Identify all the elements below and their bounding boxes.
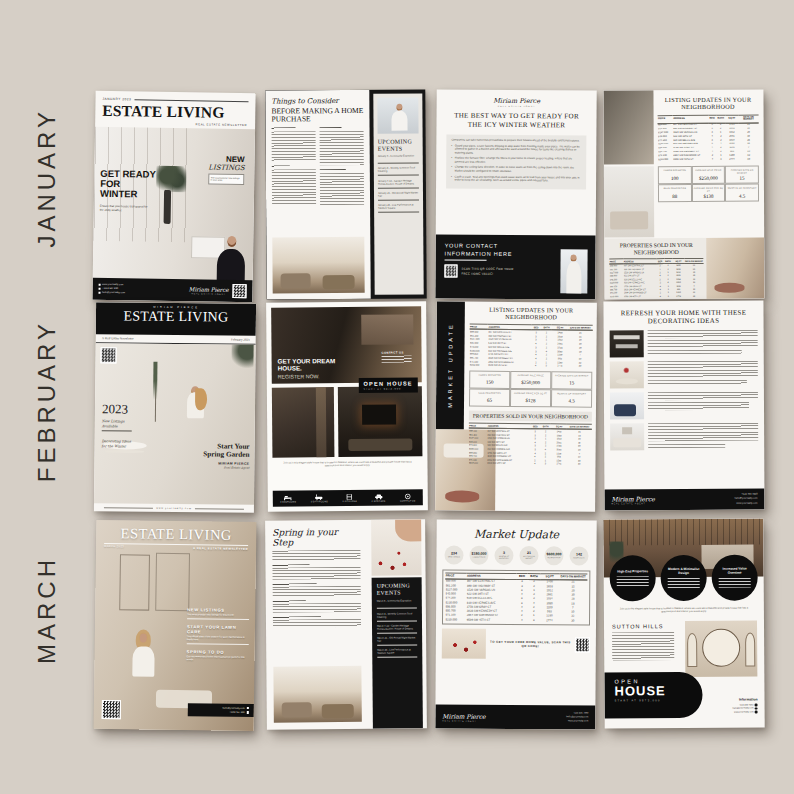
berries xyxy=(442,629,486,659)
col-header: SQ FT xyxy=(725,115,738,123)
jan-tips-page: Miriam Pierce REAL ESTATE AGENT THE BEST… xyxy=(435,89,596,299)
text-placeholder xyxy=(273,567,361,580)
text-placeholder xyxy=(668,577,699,587)
qr-caption: TO GET YOUR FREE HOME VALUE, SCAN THIS Q… xyxy=(490,640,571,649)
amenity-bathrooms: 3 BATHROOMS xyxy=(311,494,328,503)
event-text: March 8 - Monthly Common Roof Cleaning xyxy=(377,612,417,618)
amenity-label: 2 KITCHENS xyxy=(343,500,357,502)
text-placeholder xyxy=(382,355,412,362)
listings-label: LISTINGS xyxy=(208,164,244,173)
badge-title: OPEN HOUSE xyxy=(363,380,412,386)
events-sidebar: UPCOMING EVENTS March 5 - Community Expo… xyxy=(371,519,423,728)
mar-open-house-page: High-End Properties Modern & Minimalist … xyxy=(603,518,764,728)
decor-headline: REFRESH YOUR HOME WITH THESE DECORATING … xyxy=(615,309,751,327)
text-placeholder xyxy=(273,616,321,618)
issue-date: February 2023 xyxy=(231,338,250,342)
stat-label: SOLD PROPERTIES xyxy=(660,187,690,193)
table-row: $219,0009509 SW 45TH ST43277430 xyxy=(445,617,587,622)
amenity-label: 3 BATHROOMS xyxy=(311,501,328,503)
sidebar-photo-dress xyxy=(391,111,407,131)
sold-title: PROPERTIES SOLD IN YOUR NEIGHBORHOOD xyxy=(609,242,703,256)
article-main: Spring in your Step xyxy=(265,520,369,730)
masthead: ESTATE LIVING xyxy=(95,101,255,123)
decor-row xyxy=(610,392,758,420)
cover-block-lawn-care: START YOUR LAWN CARE The official start … xyxy=(187,624,249,645)
agent-title: REAL ESTATE AGENT xyxy=(189,292,229,295)
contact-list: www.yourrealty.com +1234 567 890 hello@y… xyxy=(98,283,184,297)
feature-circles: High-End Properties Modern & Minimalist … xyxy=(604,554,764,601)
event-text: March 5 - Community Exposition xyxy=(377,600,417,606)
plant-icon xyxy=(231,345,253,375)
sofa xyxy=(322,704,354,718)
event-text: January 6 - Community Exposition xyxy=(378,155,419,161)
event-text: January 28 - Live Performance at Stadium… xyxy=(378,203,419,209)
qr-code xyxy=(575,637,590,652)
event-item: January 7-13 - Garden Heritage Homes Auc… xyxy=(378,179,419,188)
block-title: START YOUR LAWN CARE xyxy=(187,624,249,635)
event-item: March 5 - Community Exposition xyxy=(377,600,417,609)
agent-portrait xyxy=(560,249,587,293)
curtain xyxy=(316,387,327,457)
issue-date: MARCH 2023 xyxy=(104,545,124,549)
event-rule xyxy=(378,163,419,164)
cover-line-2: Decorating Ideas for the Winter xyxy=(102,439,134,449)
tall-plant xyxy=(153,362,158,422)
cover-footer: www.yourrealty.com xyxy=(94,503,254,513)
table-row: $219,0009509 SW 45TH ST43277430 xyxy=(658,158,759,162)
sidebar-photo xyxy=(377,97,418,133)
col-header: PRICE xyxy=(658,115,673,123)
agent-title: Real Estate Agent xyxy=(195,465,249,470)
event-item: March 21 - Old Annual Night Market Fair xyxy=(377,636,417,645)
text-placeholder xyxy=(273,583,317,585)
table-row: $219,0009509 SW 45TH ST43277430 xyxy=(469,363,592,368)
masthead: ESTATE LIVING xyxy=(96,308,256,326)
portrait-head xyxy=(571,254,577,261)
script-title: Market Update xyxy=(443,527,591,541)
mockup-canvas: JANUARY FEBRUARY MARCH JANUARY 2023 ESTA… xyxy=(0,0,794,794)
col-header: ADDRESS xyxy=(673,115,708,123)
contact-list: +123 456 7890 hello@yourrealty.com www.y… xyxy=(566,712,588,724)
lounge-photo xyxy=(272,387,335,458)
block-sub: Our recommended home improvement project… xyxy=(187,655,249,662)
bedroom-photo xyxy=(604,166,654,237)
pastry-photo xyxy=(442,629,486,659)
stat-circle: 21 AVG DAYS ON MARKET xyxy=(519,546,538,565)
living-room-photo xyxy=(272,237,364,294)
feature-circle: Increased Value Overtime xyxy=(712,554,758,600)
circle-label: MONTHS OF INVENTORY xyxy=(494,556,513,560)
article-col-1 xyxy=(272,127,317,205)
text-placeholder xyxy=(648,330,758,339)
listing-table: PRICE ADDRESS BED BATH SQ FT DAYS ON MAR… xyxy=(445,573,587,623)
cover-headline-sub: Ensure that your house is prepared for t… xyxy=(100,205,150,213)
hero-photo: GET YOUR DREAM HOUSE. REGISTER NOW. CONT… xyxy=(271,306,422,383)
script-title: Things to Consider xyxy=(271,97,363,106)
stat-label: AVERAGE SALE PRICE xyxy=(512,373,549,379)
text-placeholder xyxy=(272,165,290,167)
living-photo xyxy=(610,423,644,450)
photo-row xyxy=(272,386,423,457)
open-house-badge: OPEN HOUSE START AT $873,000 xyxy=(358,377,417,393)
tip-bullet: Guard your pipes. Leave faucets dripping… xyxy=(451,144,581,155)
feature-block: Start Your Spring Garden MIRIAM PIERCE R… xyxy=(195,442,249,470)
decor-text xyxy=(648,392,758,420)
sold-photo xyxy=(706,238,764,299)
stat-value: $138 xyxy=(694,194,724,199)
text-placeholder xyxy=(648,423,758,431)
feb-cover-page: MIRIAM PIERCE ESTATE LIVING A Real Estat… xyxy=(94,302,256,513)
cover-footer: www.yourrealty.com +1234 567 890 hello@y… xyxy=(92,278,252,303)
text-placeholder xyxy=(272,550,360,561)
text-placeholder xyxy=(320,127,342,129)
stat-value: $250,000 xyxy=(694,176,724,181)
month-label-january: JANUARY xyxy=(33,108,61,248)
qr-code xyxy=(102,700,121,719)
text-placeholder xyxy=(320,172,364,204)
text-placeholder xyxy=(648,444,725,448)
stat-label: MONTHS OF INVENTORY xyxy=(553,392,590,398)
feature-circle: Modern & Minimalist Design xyxy=(661,555,707,601)
events-list: January 6 - Community Exposition January… xyxy=(378,155,419,213)
listings-sub: The most popular new listings in your ar… xyxy=(208,174,244,185)
blue-chair xyxy=(614,404,636,416)
sold-section: PROPERTIES SOLD IN YOUR NEIGHBORHOOD PRI… xyxy=(604,238,764,300)
contact-row: +1234 567 890 xyxy=(193,710,249,715)
tv xyxy=(622,427,632,434)
market-update-strip: MARKET UPDATE xyxy=(436,301,465,429)
newsletter-label: A Real Estate Newsletter xyxy=(102,336,134,340)
text-placeholder xyxy=(272,127,296,129)
mar-cover-page: ESTATE LIVING MARCH 2023 A REAL ESTATE N… xyxy=(94,520,257,731)
globe-icon xyxy=(755,711,758,714)
event-rule xyxy=(377,620,417,621)
stat-circle: 234 NEW LISTINGS xyxy=(444,545,463,564)
stat-value: 4.5 xyxy=(553,399,590,404)
col-header: BED xyxy=(708,115,716,123)
fireplace xyxy=(362,405,396,425)
sold-content: PROPERTIES SOLD IN YOUR NEIGHBORHOOD PRI… xyxy=(609,242,703,298)
article-columns xyxy=(272,127,365,205)
stat-circle: $150,000 LOWEST PRICE xyxy=(469,546,488,565)
text-placeholder xyxy=(648,392,758,401)
event-text: March 7-13 - Garden Heritage Homes Aucti… xyxy=(377,624,417,630)
listing-table: PRICE ADDRESS BED BATH SQ FT DAYS ON MAR… xyxy=(658,114,759,162)
round-window-photo xyxy=(685,620,757,677)
stat-box: AVERAGE SALE PRICE $250,000 xyxy=(692,166,726,184)
decor-text xyxy=(648,330,758,358)
stat-box: AVERAGE PRICE PER SQ FT $128 xyxy=(510,389,551,408)
signature-block: Miriam Pierce REAL ESTATE AGENT xyxy=(442,712,485,721)
strip-label: MARKET UPDATE xyxy=(447,323,454,408)
hero-sub: REGISTER NOW. xyxy=(278,373,320,379)
stat-label: HOMES REPORTED xyxy=(471,373,508,379)
contact-block: CONTACT US xyxy=(382,350,412,362)
event-rule xyxy=(377,632,417,633)
stat-label: HOMES REPORTED xyxy=(660,169,690,175)
stat-box: HOMES REPORTED 150 xyxy=(469,370,510,389)
text-placeholder xyxy=(617,576,648,586)
bed xyxy=(610,211,648,229)
sofa xyxy=(323,275,355,289)
website: www.yourrealty.com xyxy=(156,506,192,509)
cover-headline: GET READY FOR WINTER xyxy=(100,169,158,200)
events-sidebar: UPCOMING EVENTS January 6 - Community Ex… xyxy=(373,93,423,294)
arch-window xyxy=(687,633,697,667)
open-house-badge: OPEN HOUSE START AT $873,000 xyxy=(604,672,702,719)
logo-block: Miriam Pierce REAL ESTATE AGENT xyxy=(437,89,597,107)
stats-grid: HOMES REPORTED 100 AVERAGE SALE PRICE $2… xyxy=(658,166,759,203)
cover-block-spring-todo: SPRING TO DO Our recommended home improv… xyxy=(187,649,249,662)
agent-photo-head xyxy=(227,236,236,247)
stat-value: 4.5 xyxy=(727,194,757,199)
cover-block-new-listings: NEW LISTINGS The most popular new listin… xyxy=(187,607,249,619)
event-text: January 7-13 - Garden Heritage Homes Auc… xyxy=(378,179,419,185)
stat-box: MONTHS OF INVENTORY 4.5 xyxy=(725,184,759,202)
stat-value: 65 xyxy=(471,398,508,403)
stat-box: AVERAGE SALE PRICE $250,000 xyxy=(510,370,551,389)
mar-article-page: Spring in your Step UPCOMING EVENTS xyxy=(265,519,427,729)
tips-box: Companies can take numerous precautions … xyxy=(446,134,586,189)
article-headline: BEFORE MAKING A HOME PURCHASE xyxy=(271,106,363,123)
updates-title: LISTING UPDATES IN YOUR NEIGHBORHOOD xyxy=(657,96,758,111)
community-title: SUTTON HILLS xyxy=(612,623,674,629)
stat-value: $128 xyxy=(512,398,549,403)
block-sub: The most popular new listings for this m… xyxy=(187,613,249,617)
col-header: BATH xyxy=(716,115,725,123)
badge-sub: START AT $873,000 xyxy=(364,387,413,389)
stat-label: SOLD PROPERTIES xyxy=(471,391,508,397)
stat-box: SOLD PROPERTIES 88 xyxy=(658,184,692,202)
jan-market-page: LISTING UPDATES IN YOUR NEIGHBORHOOD PRI… xyxy=(603,90,764,300)
text-placeholder xyxy=(648,370,758,378)
kitchen-photo xyxy=(603,90,653,164)
window-frame xyxy=(119,554,150,610)
contact-title: YOUR CONTACT INFORMATION HERE xyxy=(445,242,545,259)
text-placeholder xyxy=(612,632,674,660)
wood-ceiling xyxy=(603,518,763,545)
event-rule xyxy=(378,211,419,212)
event-text: January 21 - Old Annual Night Market Fai… xyxy=(378,191,419,197)
stat-label: MONTHS OF INVENTORY xyxy=(727,187,757,193)
sold-title: PROPERTIES SOLD IN YOUR NEIGHBORHOOD xyxy=(469,410,592,422)
feb-decor-page: REFRESH YOUR HOME WITH THESE DECORATING … xyxy=(603,301,764,511)
event-rule xyxy=(378,187,419,188)
flowers xyxy=(623,367,630,373)
tips-intro: Companies can take numerous precautions … xyxy=(451,138,581,142)
contact-email: hello@yourrealty.com xyxy=(102,291,125,295)
table-row: $219,0009509 SW 45TH ST43277430 xyxy=(610,294,704,298)
stat-circle: $600,000 HIGHEST PRICE xyxy=(544,546,563,565)
fireplace-photo xyxy=(338,386,423,457)
stat-value: 150 xyxy=(471,380,508,385)
event-item: January 28 - Live Performance at Stadium… xyxy=(378,203,419,212)
mar-market-page: Market Update 234 NEW LISTINGS $150,000 … xyxy=(435,519,596,729)
feb-open-house-page: GET YOUR DREAM HOUSE. REGISTER NOW. CONT… xyxy=(266,301,428,511)
circle-label: HIGHEST PRICE xyxy=(546,557,561,559)
dining-photo xyxy=(610,361,644,388)
agent-title: REAL ESTATE AGENT xyxy=(442,719,485,721)
mail-icon xyxy=(247,707,249,709)
cover-person-body xyxy=(132,646,154,676)
logo-title: REAL ESTATE AGENT xyxy=(437,104,597,107)
badge-sub: START AT $873,000 xyxy=(615,699,693,703)
month-label-march: MARCH xyxy=(33,556,61,664)
rule xyxy=(195,508,244,509)
feature-title: Increased Value Overtime xyxy=(719,568,751,576)
cover-photo: 2023 New Listings Available Decorating I… xyxy=(94,343,256,505)
event-rule xyxy=(378,199,419,200)
issue-row: MARCH 2023 A REAL ESTATE NEWSLETTER xyxy=(96,543,256,551)
text-placeholder xyxy=(272,564,309,566)
text-placeholder xyxy=(320,131,364,165)
contact-list: +123 456 7890 hello@yourrealty.com www.y… xyxy=(734,493,757,505)
decor-row xyxy=(610,423,758,451)
text-placeholder xyxy=(273,600,306,602)
event-item: March 7-13 - Garden Heritage Homes Aucti… xyxy=(377,624,417,633)
amenity-label: 2 GARAGES xyxy=(372,500,386,502)
caption: Join us in this elegant style house that… xyxy=(616,607,752,615)
rug xyxy=(714,283,744,293)
decor-row xyxy=(610,330,758,358)
event-rule xyxy=(377,656,417,657)
rule xyxy=(187,618,249,619)
table-frame: PRICE ADDRESS BED BATH SQ FT DAYS ON MAR… xyxy=(442,569,590,625)
rule xyxy=(445,259,487,260)
stat-circle: 3 MONTHS OF INVENTORY xyxy=(494,546,513,565)
text-placeholder xyxy=(273,586,361,597)
amenity-label: 4 BEDROOMS xyxy=(280,501,296,503)
car-icon xyxy=(374,493,382,499)
sofa xyxy=(281,273,311,288)
badge-house: HOUSE xyxy=(614,684,692,698)
rule xyxy=(104,507,153,508)
sold-table: PRICE ADDRESS BED BATH SQ FT DAYS ON MAR… xyxy=(468,423,591,466)
issue-date: JANUARY 2023 xyxy=(102,97,131,101)
globe-icon xyxy=(99,284,101,286)
decor-text xyxy=(648,361,758,389)
cover-photo: GET READY FOR WINTER Ensure that your ho… xyxy=(93,127,255,287)
stat-value: 15 xyxy=(727,175,757,180)
circle-label: HOMES SOLD xyxy=(572,557,585,559)
feature-title: High-End Properties xyxy=(617,571,649,575)
page-footer: Miriam Pierce REAL ESTATE AGENT +123 456… xyxy=(604,489,764,511)
circle-label: NEW LISTINGS xyxy=(447,556,461,558)
stat-label: AVERAGE PRICE PER SQ FT xyxy=(694,187,724,193)
qr-code xyxy=(444,265,457,278)
sidebar-photo-person xyxy=(396,104,402,111)
arch-window xyxy=(745,633,755,667)
text-placeholder xyxy=(320,169,346,171)
bedroom-photo xyxy=(610,392,644,419)
cover-person-face xyxy=(140,634,147,643)
amenity-kitchens: 2 KITCHENS xyxy=(343,494,357,503)
block-sub: The official start of the season for law… xyxy=(187,635,249,642)
amenity-contact: CONTACT US xyxy=(400,493,415,502)
feb-market-page: MARKET UPDATE LISTING UPDATES IN YOUR NE… xyxy=(435,301,597,511)
round-window xyxy=(702,629,740,667)
living-room-photo xyxy=(273,666,361,723)
bathtub-icon xyxy=(315,494,323,500)
hand-photo xyxy=(371,519,421,575)
event-rule xyxy=(378,175,419,176)
circle-label: AVG DAYS ON MARKET xyxy=(519,556,538,560)
page-footer: Miriam Pierce REAL ESTATE AGENT +123 456… xyxy=(435,704,595,729)
stat-box: AVERAGE PRICE PER SQ FT $138 xyxy=(692,184,726,202)
event-item: March 8 - Monthly Common Roof Cleaning xyxy=(377,612,417,621)
text-placeholder xyxy=(273,619,361,628)
qr-code xyxy=(232,284,246,298)
stat-box: AVERAGE DAYS ON MARKET 15 xyxy=(551,371,592,390)
feature-circle: High-End Properties xyxy=(610,555,656,601)
text-placeholder xyxy=(272,169,316,205)
contact-section: YOUR CONTACT INFORMATION HERE SCAN THIS … xyxy=(435,234,595,299)
event-rule xyxy=(377,644,417,645)
berries xyxy=(371,519,421,575)
contact-website: www.yourrealty.com xyxy=(566,719,588,723)
stat-label: AVERAGE SALE PRICE xyxy=(694,169,724,175)
article-main: Things to Consider BEFORE MAKING A HOME … xyxy=(265,90,370,300)
text-placeholder xyxy=(648,350,742,355)
kitchen-area xyxy=(361,314,413,344)
event-item: January 8 - Monthly Common Roof Cleaning xyxy=(378,167,419,176)
phone-icon xyxy=(99,288,101,290)
month-label-february: FEBRUARY xyxy=(33,320,61,482)
qr-caption: SCAN THIS QR CODE FOR YOUR FREE HOME VAL… xyxy=(461,267,513,276)
cover-line-1: New Listings Available xyxy=(102,419,132,432)
stat-box: SOLD PROPERTIES 65 xyxy=(469,388,510,407)
info-website: www.yourrealty.com xyxy=(734,710,753,713)
cover-blocks: NEW LISTINGS The most popular new listin… xyxy=(187,607,250,662)
text-placeholder xyxy=(648,402,749,411)
col-header: DAYS ON MARKET xyxy=(738,115,758,123)
info-website-row: www.yourrealty.com xyxy=(704,710,758,714)
stat-circles: 234 NEW LISTINGS $150,000 LOWEST PRICE 3… xyxy=(442,545,590,565)
information-block: Information +123 456 7890 hello@yourreal… xyxy=(704,698,758,714)
text-placeholder xyxy=(648,380,747,386)
stat-box: MONTHS OF INVENTORY 4.5 xyxy=(551,389,592,408)
sold-table: PRICE ADDRESS BED BATH SQ FT DAYS ON MAR… xyxy=(609,258,703,298)
stat-label: AVERAGE PRICE PER SQ FT xyxy=(512,392,549,398)
text-placeholder xyxy=(648,361,758,369)
amenity-bedrooms: 4 BEDROOMS xyxy=(280,494,296,503)
event-text: March 30 - Live Performance at Stadium S… xyxy=(377,648,417,654)
contact-label: CONTACT US xyxy=(382,350,412,354)
phone-icon xyxy=(247,711,249,713)
decor-text xyxy=(648,423,758,451)
shelf-objects xyxy=(614,335,640,339)
portrait-body xyxy=(566,261,581,293)
stat-value: 100 xyxy=(660,176,690,181)
signature-block: Miriam Pierce REAL ESTATE AGENT xyxy=(611,495,654,504)
text-placeholder xyxy=(719,577,750,587)
caption: Join us in this elegant style house that… xyxy=(281,460,413,468)
text-placeholder xyxy=(648,340,758,348)
bed-icon xyxy=(284,494,292,500)
stat-value: 15 xyxy=(553,381,590,386)
events-list: March 5 - Community Exposition March 8 -… xyxy=(377,600,418,658)
sofa xyxy=(282,702,312,717)
amenity-label: CONTACT US xyxy=(400,500,415,502)
text-placeholder xyxy=(273,603,361,613)
contact-bar: hello@yourrealty.com +1234 567 890 xyxy=(188,703,254,717)
stats-grid: HOMES REPORTED 150 AVERAGE SALE PRICE $2… xyxy=(469,370,592,407)
stat-label: AVERAGE DAYS ON MARKET xyxy=(727,169,757,175)
amenities-bar: 4 BEDROOMS 3 BATHROOMS 2 KITCHENS 2 GARA… xyxy=(273,489,423,506)
agent-signature: Miriam Pierce xyxy=(442,712,485,719)
tip-bullet: Replace the furnace filter. Change the f… xyxy=(451,157,581,165)
kitchen-icon xyxy=(346,494,353,500)
